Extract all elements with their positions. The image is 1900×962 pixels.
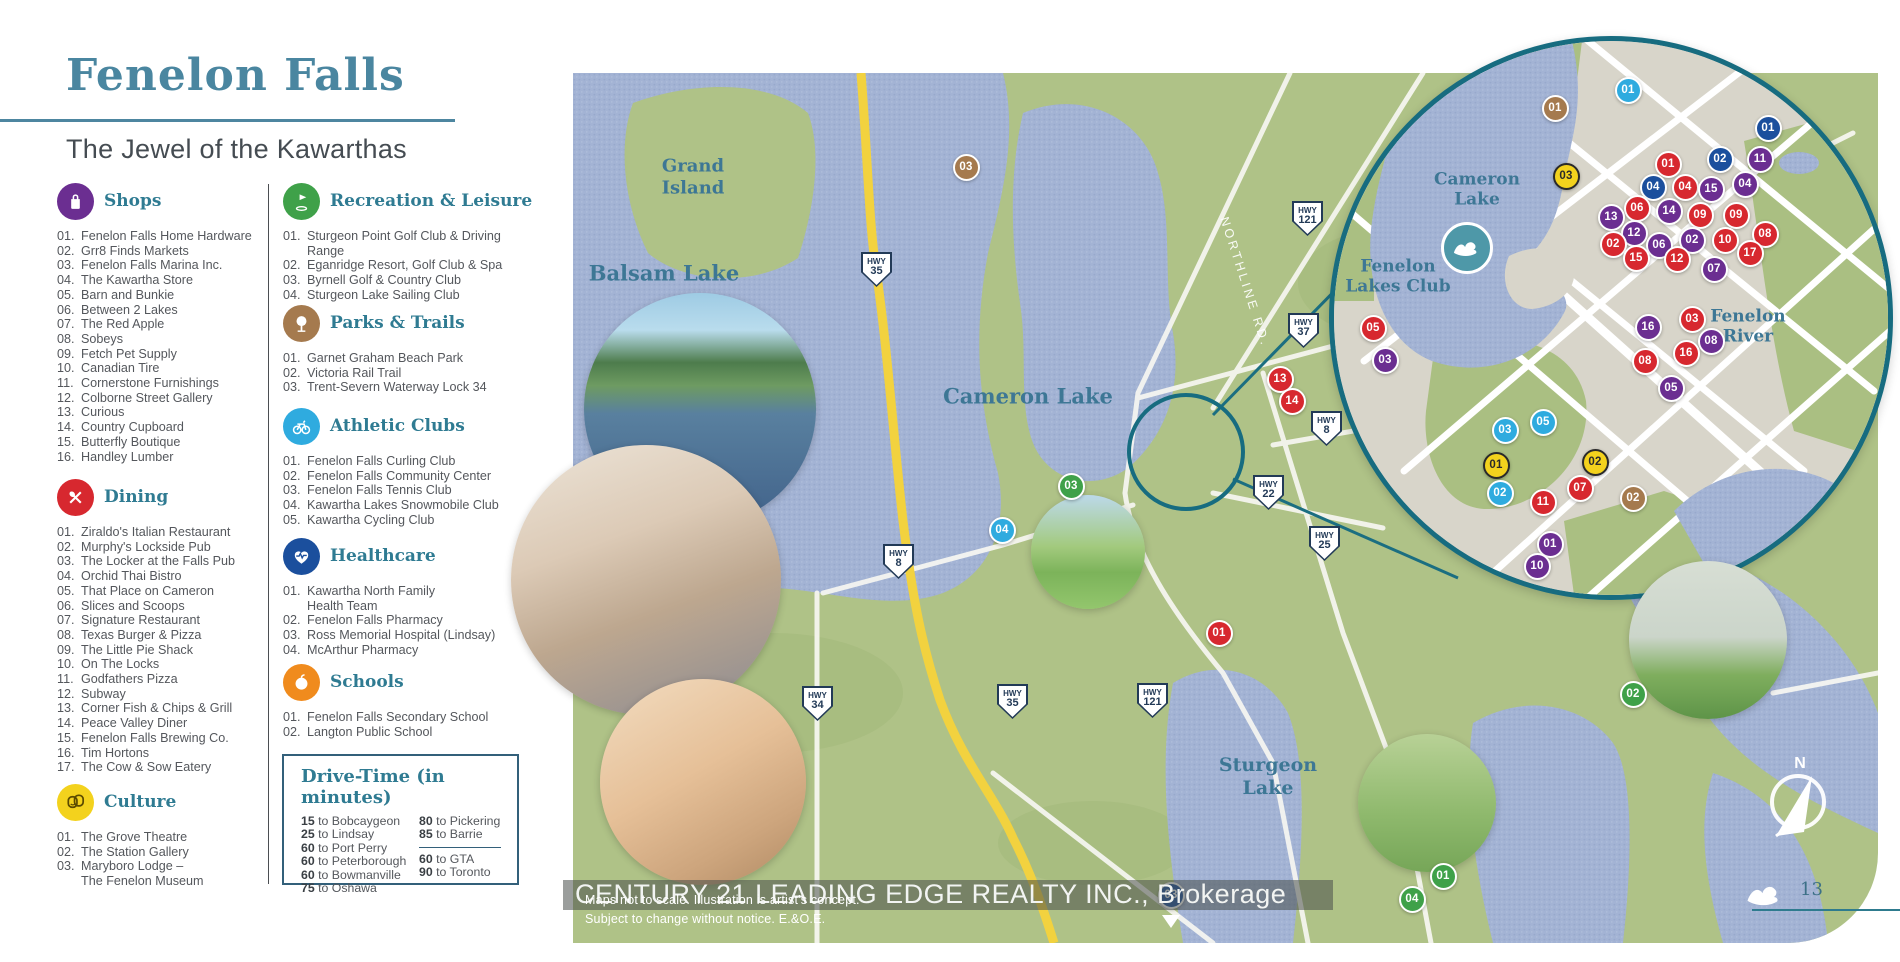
drive-time-row: 85 to Barrie: [419, 828, 511, 841]
list-item: 17.The Cow & Sow Eatery: [57, 760, 282, 775]
wave-icon: [1452, 238, 1482, 258]
list-item: 01.Garnet Graham Beach Park: [283, 351, 508, 366]
list-item: 03.The Locker at the Falls Pub: [57, 554, 282, 569]
map-marker-culture-02: 02: [1582, 449, 1609, 476]
golf-icon: [283, 183, 320, 220]
section-label: Dining: [104, 487, 168, 507]
drive-time-right-column: 80 to Pickering85 to Barrie60 to GTA90 t…: [419, 815, 511, 895]
list-item: 03.Trent-Severn Waterway Lock 34: [283, 380, 508, 395]
list-item: 02.Fenelon Falls Pharmacy: [283, 613, 508, 628]
map-marker-shops-11: 11: [1747, 146, 1774, 173]
section-label: Schools: [330, 672, 404, 692]
list-item: 03.Byrnell Golf & Country Club: [283, 273, 508, 288]
map-marker-recreation-02: 02: [1620, 681, 1647, 708]
list-item: 10.Canadian Tire: [57, 361, 282, 376]
list-item: 11.Godfathers Pizza: [57, 672, 282, 687]
map-marker-dining-12: 12: [1664, 246, 1691, 273]
map-marker-dining-16: 16: [1673, 340, 1700, 367]
drive-time-row: 60 to Port Perry: [301, 842, 419, 855]
list-item: 07.The Red Apple: [57, 317, 282, 332]
map-marker-shops-08: 08: [1698, 328, 1725, 355]
list-item: 02.Langton Public School: [283, 725, 508, 740]
list-item: 04.McArthur Pharmacy: [283, 643, 508, 658]
map-marker-shops-05: 05: [1658, 375, 1685, 402]
map-label: Fenelon Lakes Club: [1345, 257, 1450, 298]
map-marker-dining-08: 08: [1632, 348, 1659, 375]
list-item: 13.Curious: [57, 405, 282, 420]
map-marker-dining-01: 01: [1206, 620, 1233, 647]
apple-icon: [283, 664, 320, 701]
drive-time-row: 90 to Toronto: [419, 866, 511, 879]
map-marker-dining-02: 02: [1600, 231, 1627, 258]
map-marker-athletic-05: 05: [1530, 409, 1557, 436]
map-marker-parks-02: 02: [1620, 485, 1647, 512]
list-item: 01.Ziraldo's Italian Restaurant: [57, 525, 282, 540]
map-marker-dining-17: 17: [1737, 240, 1764, 267]
disclaimer-line-2: Subject to change without notice. E.&O.E…: [585, 912, 825, 926]
list-item: 03.Ross Memorial Hospital (Lindsay): [283, 628, 508, 643]
section-label: Athletic Clubs: [330, 416, 465, 436]
map-marker-shops-07: 07: [1701, 256, 1728, 283]
photo-golf-couple: [1358, 734, 1496, 872]
map-label: Balsam Lake: [589, 260, 740, 285]
drive-time-row: 60 to Peterborough: [301, 855, 419, 868]
legend-section-recreation: Recreation & Leisure01.Sturgeon Point Go…: [283, 182, 508, 303]
map-marker-shops-03: 03: [1372, 347, 1399, 374]
map-marker-dining-14: 14: [1279, 388, 1306, 415]
drive-time-row: 80 to Pickering: [419, 815, 511, 828]
map-marker-recreation-01: 01: [1430, 863, 1457, 890]
page-subtitle: The Jewel of the Kawarthas: [66, 134, 407, 165]
wave-logo-icon: [1745, 882, 1785, 912]
bicycle-icon: [283, 408, 320, 445]
shopping-bag-icon: [57, 183, 94, 220]
list-item: 01.Kawartha North Family Health Team: [283, 584, 508, 613]
map-marker-athletic-01: 01: [1615, 77, 1642, 104]
photo-golf-swing: [1629, 561, 1787, 719]
list-item: 09.Fetch Pet Supply: [57, 347, 282, 362]
list-item: 04.The Kawartha Store: [57, 273, 282, 288]
section-label: Parks & Trails: [330, 313, 465, 333]
list-item: 03.Fenelon Falls Tennis Club: [283, 483, 508, 498]
list-item: 04.Orchid Thai Bistro: [57, 569, 282, 584]
section-label: Healthcare: [330, 546, 436, 566]
list-item: 10.On The Locks: [57, 657, 282, 672]
list-item: 05.Kawartha Cycling Club: [283, 513, 508, 528]
map-label: Sturgeon Lake: [1219, 754, 1317, 800]
map-marker-parks-01: 01: [1542, 95, 1569, 122]
map-marker-dining-11: 11: [1530, 489, 1557, 516]
map-marker-dining-09: 09: [1723, 202, 1750, 229]
list-item: 12.Subway: [57, 687, 282, 702]
list-item: 16.Tim Hortons: [57, 746, 282, 761]
drive-time-row: 15 to Bobcaygeon: [301, 815, 419, 828]
map-marker-healthcare-02: 02: [1707, 146, 1734, 173]
page-title: Fenelon Falls: [66, 50, 405, 101]
list-item: 05.Barn and Bunkie: [57, 288, 282, 303]
list-item: 09.The Little Pie Shack: [57, 643, 282, 658]
list-item: 03.Fenelon Falls Marina Inc.: [57, 258, 282, 273]
map-marker-recreation-03: 03: [1058, 473, 1085, 500]
list-item: 08.Sobeys: [57, 332, 282, 347]
footer-rule: [1752, 909, 1900, 911]
map-marker-dining-07: 07: [1567, 475, 1594, 502]
legend-section-schools: Schools01.Fenelon Falls Secondary School…: [283, 663, 508, 739]
legend-section-dining: Dining01.Ziraldo's Italian Restaurant02.…: [57, 478, 282, 775]
page-number: 13: [1800, 879, 1823, 900]
list-item: 08.Texas Burger & Pizza: [57, 628, 282, 643]
legend-section-culture: Culture01.The Grove Theatre02.The Statio…: [57, 783, 282, 889]
map-marker-shops-13: 13: [1598, 204, 1625, 231]
offmap-pointer-triangle: [1162, 915, 1180, 928]
list-item: 07.Signature Restaurant: [57, 613, 282, 628]
list-item: 02.Victoria Rail Trail: [283, 366, 508, 381]
map-marker-shops-10: 10: [1524, 553, 1551, 580]
map-marker-dining-10: 10: [1712, 227, 1739, 254]
legend-section-athletic: Athletic Clubs01.Fenelon Falls Curling C…: [283, 407, 508, 528]
list-item: 01.The Grove Theatre: [57, 830, 282, 845]
list-item: 12.Colborne Street Gallery: [57, 391, 282, 406]
section-label: Recreation & Leisure: [330, 191, 532, 211]
list-item: 01.Fenelon Falls Secondary School: [283, 710, 508, 725]
section-label: Shops: [104, 191, 161, 211]
list-item: 01.Fenelon Falls Curling Club: [283, 454, 508, 469]
map-marker-healthcare-01: 01: [1755, 115, 1782, 142]
disclaimer-line-1: Maps not to scale. Illustration is artis…: [585, 893, 860, 907]
tree-icon: [283, 305, 320, 342]
photo-window-shopping: [600, 679, 806, 885]
brochure-page: Fenelon Falls The Jewel of the Kawarthas…: [0, 0, 1900, 962]
legend-section-shops: Shops01.Fenelon Falls Home Hardware02.Gr…: [57, 182, 282, 464]
map-marker-shops-16: 16: [1635, 314, 1662, 341]
map-marker-dining-03: 03: [1679, 306, 1706, 333]
utensils-icon: [57, 479, 94, 516]
list-item: 02.The Station Gallery: [57, 845, 282, 860]
list-item: 06.Slices and Scoops: [57, 599, 282, 614]
list-item: 04.Kawartha Lakes Snowmobile Club: [283, 498, 508, 513]
map-marker-dining-15: 15: [1623, 245, 1650, 272]
drive-time-box: Drive-Time (in minutes) 15 to Bobcaygeon…: [282, 754, 519, 885]
photo-senior-couple: [511, 445, 781, 715]
title-rule: [0, 119, 455, 122]
list-item: 15.Butterfly Boutique: [57, 435, 282, 450]
map-marker-shops-14: 14: [1656, 198, 1683, 225]
drive-time-left-column: 15 to Bobcaygeon25 to Lindsay60 to Port …: [301, 815, 419, 895]
map-marker-dining-05: 05: [1360, 315, 1387, 342]
map-marker-dining-06: 06: [1624, 195, 1651, 222]
inset-streets: [1334, 41, 1888, 595]
list-item: 13.Corner Fish & Chips & Grill: [57, 701, 282, 716]
section-label: Culture: [104, 792, 176, 812]
town-inset-circle: [1329, 36, 1893, 600]
map-marker-athletic-04: 04: [989, 517, 1016, 544]
list-item: 01.Sturgeon Point Golf Club & Driving Ra…: [283, 229, 508, 258]
list-item: 02.Fenelon Falls Community Center: [283, 469, 508, 484]
map-marker-shops-04: 04: [1732, 171, 1759, 198]
map-marker-athletic-03: 03: [1492, 417, 1519, 444]
heart-pulse-icon: [283, 538, 320, 575]
map-label: Cameron Lake: [943, 383, 1113, 408]
list-item: 06.Between 2 Lakes: [57, 303, 282, 318]
drive-time-row: 25 to Lindsay: [301, 828, 419, 841]
list-item: 16.Handley Lumber: [57, 450, 282, 465]
legend-section-healthcare: Healthcare01.Kawartha North Family Healt…: [283, 537, 508, 658]
drive-time-title: Drive-Time (in minutes): [301, 766, 517, 808]
list-item: 03.Maryboro Lodge – The Fenelon Museum: [57, 859, 282, 888]
drive-time-row: 75 to Oshawa: [301, 882, 419, 895]
list-item: 01.Fenelon Falls Home Hardware: [57, 229, 282, 244]
map-marker-recreation-04: 04: [1399, 886, 1426, 913]
list-item: 02.Murphy's Lockside Pub: [57, 540, 282, 555]
list-item: 15.Fenelon Falls Brewing Co.: [57, 731, 282, 746]
map-marker-dining-01: 01: [1655, 151, 1682, 178]
list-item: 02.Eganridge Resort, Golf Club & Spa: [283, 258, 508, 273]
map-marker-culture-03: 03: [1553, 163, 1580, 190]
legend-section-parks: Parks & Trails01.Garnet Graham Beach Par…: [283, 304, 508, 395]
list-item: 02.Grr8 Finds Markets: [57, 244, 282, 259]
map-marker-parks-03: 03: [953, 154, 980, 181]
list-item: 11.Cornerstone Furnishings: [57, 376, 282, 391]
map-marker-dining-04: 04: [1672, 174, 1699, 201]
drive-time-row: 60 to Bowmanville: [301, 869, 419, 882]
map-marker-athletic-02: 02: [1487, 480, 1514, 507]
drive-time-row: 60 to GTA: [419, 853, 511, 866]
compass-rose-icon: N: [1758, 752, 1838, 849]
list-item: 04.Sturgeon Lake Sailing Club: [283, 288, 508, 303]
magnifier-source-circle: [1127, 393, 1245, 511]
list-item: 14.Peace Valley Diner: [57, 716, 282, 731]
list-item: 05.That Place on Cameron: [57, 584, 282, 599]
map-marker-shops-15: 15: [1698, 176, 1725, 203]
theater-masks-icon: [57, 784, 94, 821]
photo-golf-course: [1031, 495, 1145, 609]
map-label: Cameron Lake: [1434, 170, 1520, 211]
compass-n-label: N: [1794, 755, 1806, 772]
map-label: Grand Island: [662, 155, 725, 198]
map-marker-dining-09: 09: [1687, 202, 1714, 229]
list-item: 14.Country Cupboard: [57, 420, 282, 435]
map-marker-culture-01: 01: [1483, 452, 1510, 479]
